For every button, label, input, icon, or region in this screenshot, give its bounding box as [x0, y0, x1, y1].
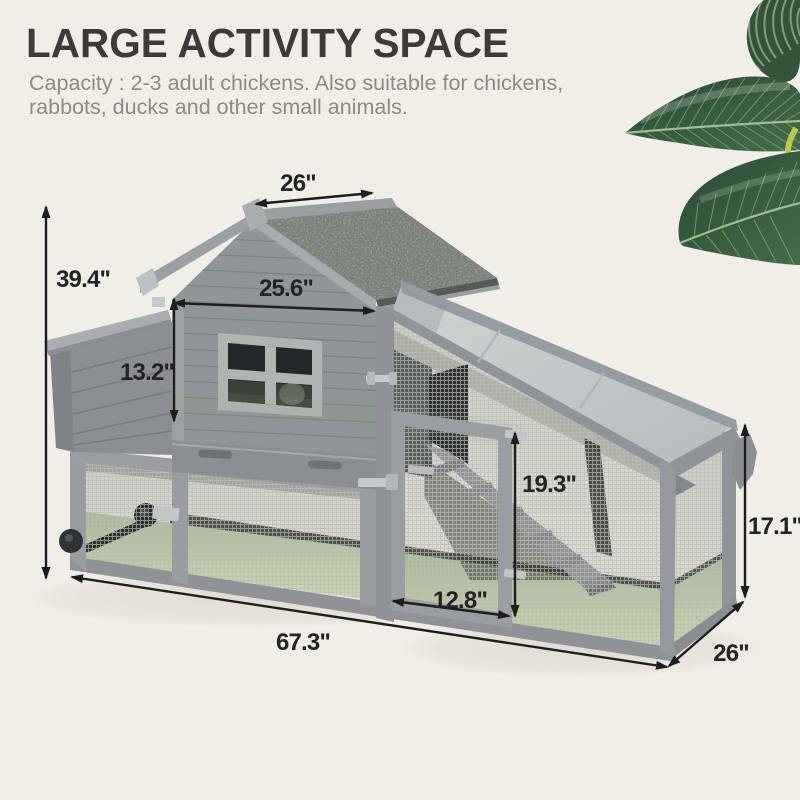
svg-text:LARGE ACTIVITY SPACE: LARGE ACTIVITY SPACE	[26, 20, 509, 66]
svg-text:12.8": 12.8"	[433, 587, 487, 614]
svg-text:26": 26"	[280, 170, 316, 197]
svg-text:13.2": 13.2"	[120, 359, 174, 386]
svg-text:25.6": 25.6"	[259, 275, 313, 302]
svg-text:19.3": 19.3"	[522, 471, 576, 498]
svg-text:rabbots, ducks and other small: rabbots, ducks and other small animals.	[29, 95, 408, 119]
svg-text:26": 26"	[713, 640, 749, 667]
svg-text:39.4": 39.4"	[56, 266, 110, 293]
svg-text:Capacity : 2-3 adult chickens.: Capacity : 2-3 adult chickens. Also suit…	[29, 71, 563, 95]
svg-text:67.3": 67.3"	[276, 629, 330, 656]
svg-text:17.1": 17.1"	[748, 513, 800, 540]
